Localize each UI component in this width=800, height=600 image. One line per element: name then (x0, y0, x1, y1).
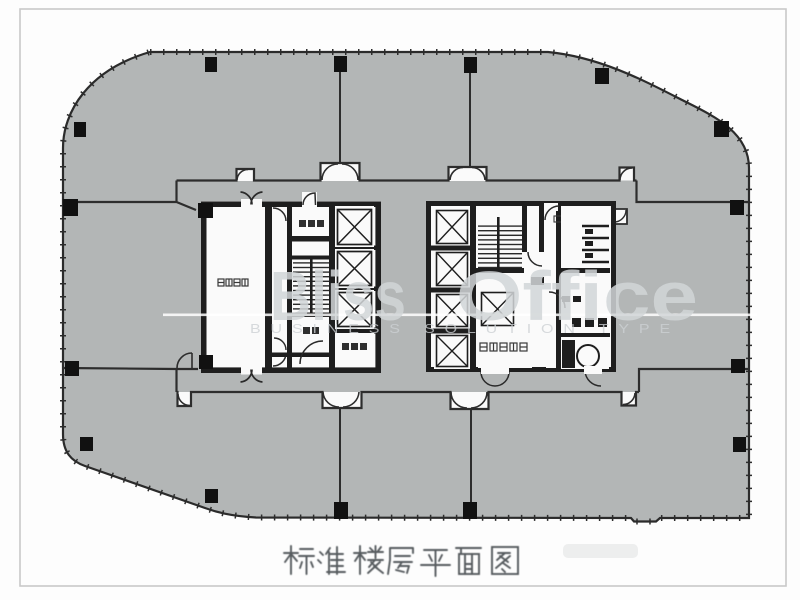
svg-text:BUSINESS SOLUTION TYPE: BUSINESS SOLUTION TYPE (250, 321, 680, 336)
